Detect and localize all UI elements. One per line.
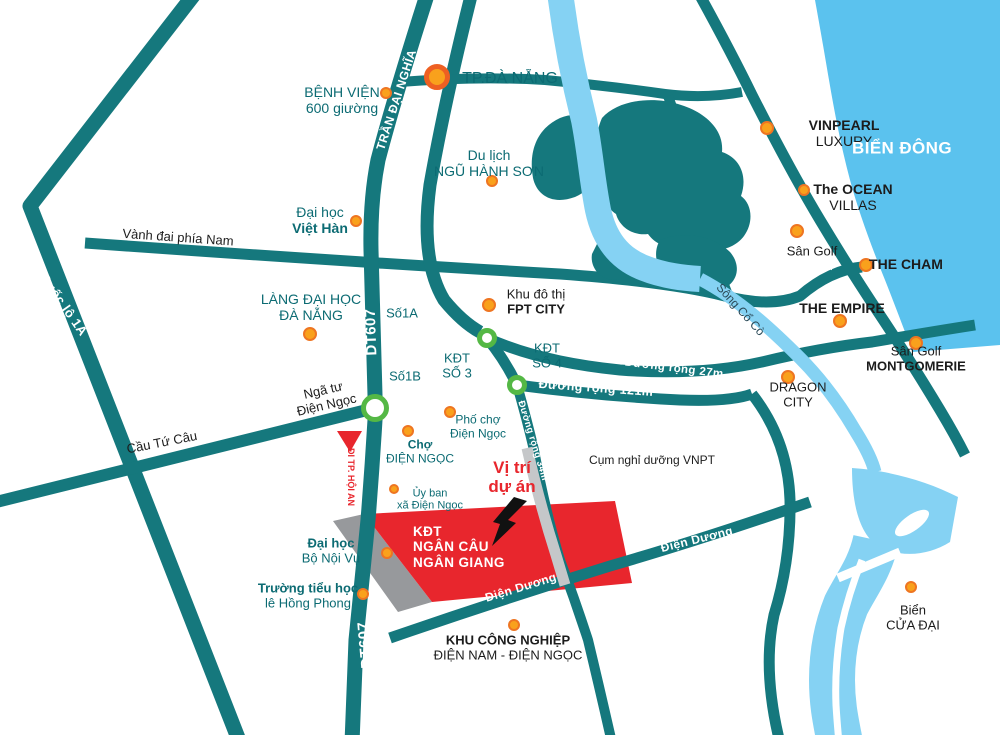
viet-han-dot — [350, 215, 362, 227]
road-north-south-east — [752, 394, 790, 735]
label-tp-da-nang: TP.ĐÀ NẴNG — [462, 70, 558, 88]
label-so-1a: Số1A — [386, 307, 418, 322]
label-cho-dien-ngoc: ChợĐIỆN NGỌC — [386, 438, 454, 465]
label-dragon-city: DRAGONCITY — [769, 380, 826, 409]
label-bien-cua-dai: BiểnCỬA ĐẠI — [886, 603, 940, 632]
label-dai-hoc-bo-noi-vu: Đại họcBộ Nội Vụ — [302, 536, 361, 565]
cua-dai-dot — [905, 581, 917, 593]
label-vi-tri-du-an: Vị trídự án — [488, 458, 535, 496]
tp-da-nang-dot — [424, 64, 450, 90]
lang-dai-hoc-dot — [303, 327, 317, 341]
label-cum-nghi-duong-vnpt: Cụm nghỉ dưỡng VNPT — [589, 454, 715, 468]
label-khu-cong-nghiep: KHU CÔNG NGHIỆPĐIỆN NAM - ĐIỆN NGỌC — [434, 633, 583, 662]
road-cau-tu-cau — [0, 408, 375, 503]
label-kdt-ngan-cau-ngan-giang: KĐTNGÂN CÂUNGÂN GIANG — [413, 524, 505, 570]
duong-121m-junction — [507, 375, 527, 395]
label-san-golf-north: Sân Golf — [787, 245, 838, 260]
label-kdt-so-3: KĐTSỐ 3 — [442, 351, 472, 380]
label-the-ocean-villas: The OCEANVILLAS — [813, 182, 892, 214]
label-pho-cho-dien-ngoc: Phố chợĐiện Ngọc — [450, 413, 506, 440]
road-label-dt607-upper: DT607 — [363, 308, 382, 356]
fpt-city-junction — [477, 328, 497, 348]
khu-cong-nghiep-dot — [508, 619, 520, 631]
label-khu-do-thi-fpt-city: Khu đô thịFPT CITY — [507, 287, 566, 316]
vinpearl-dot — [760, 121, 774, 135]
map-canvas — [0, 0, 1000, 735]
label-kdt-so-4: KĐTSỐ 4 — [532, 341, 562, 370]
label-lang-dai-hoc-da-nang: LÀNG ĐẠI HỌCĐÀ NẴNG — [261, 292, 361, 324]
label-san-golf-montgomerie: Sân GolfMONTGOMERIE — [866, 344, 966, 373]
label-uy-ban-xa-dien-ngoc: Ủy banxã Điện Ngọc — [397, 488, 463, 513]
location-map: Quốc lộ 1AQuốc lộ 1AQuốc lộ 1ATRẦN ĐẠI N… — [0, 0, 1000, 735]
label-du-lich-ngu-hanh-son: Du lịchNGŨ HÀNH SƠN — [434, 148, 544, 180]
ocean-villas-dot — [798, 184, 810, 196]
cho-dien-ngoc-dot — [402, 425, 414, 437]
label-the-empire: THE EMPIRE — [799, 301, 885, 317]
label-benh-vien: BỆNH VIỆN600 giường — [304, 85, 379, 117]
road-vanh-dai-phia-nam — [85, 243, 862, 302]
label-so-1b: Số1B — [389, 370, 421, 385]
label-dai-hoc-viet-han: Đại họcViệt Hàn — [292, 205, 348, 237]
nga-tu-dien-ngoc-junction — [361, 394, 389, 422]
label-di-tp-hoi-an: ĐI TP. HỘI AN — [346, 448, 356, 506]
label-bien-dong: BIỂN ĐÔNG — [852, 138, 952, 157]
road-quoc-lo-1a — [30, 0, 240, 735]
fpt-city-dot — [482, 298, 496, 312]
label-truong-tieu-hoc: Trường tiểu họclê Hồng Phong — [258, 581, 358, 610]
tieu-hoc-dot — [357, 588, 369, 600]
label-the-cham: THE CHAM — [869, 257, 943, 273]
bo-noi-vu-dot — [381, 547, 393, 559]
